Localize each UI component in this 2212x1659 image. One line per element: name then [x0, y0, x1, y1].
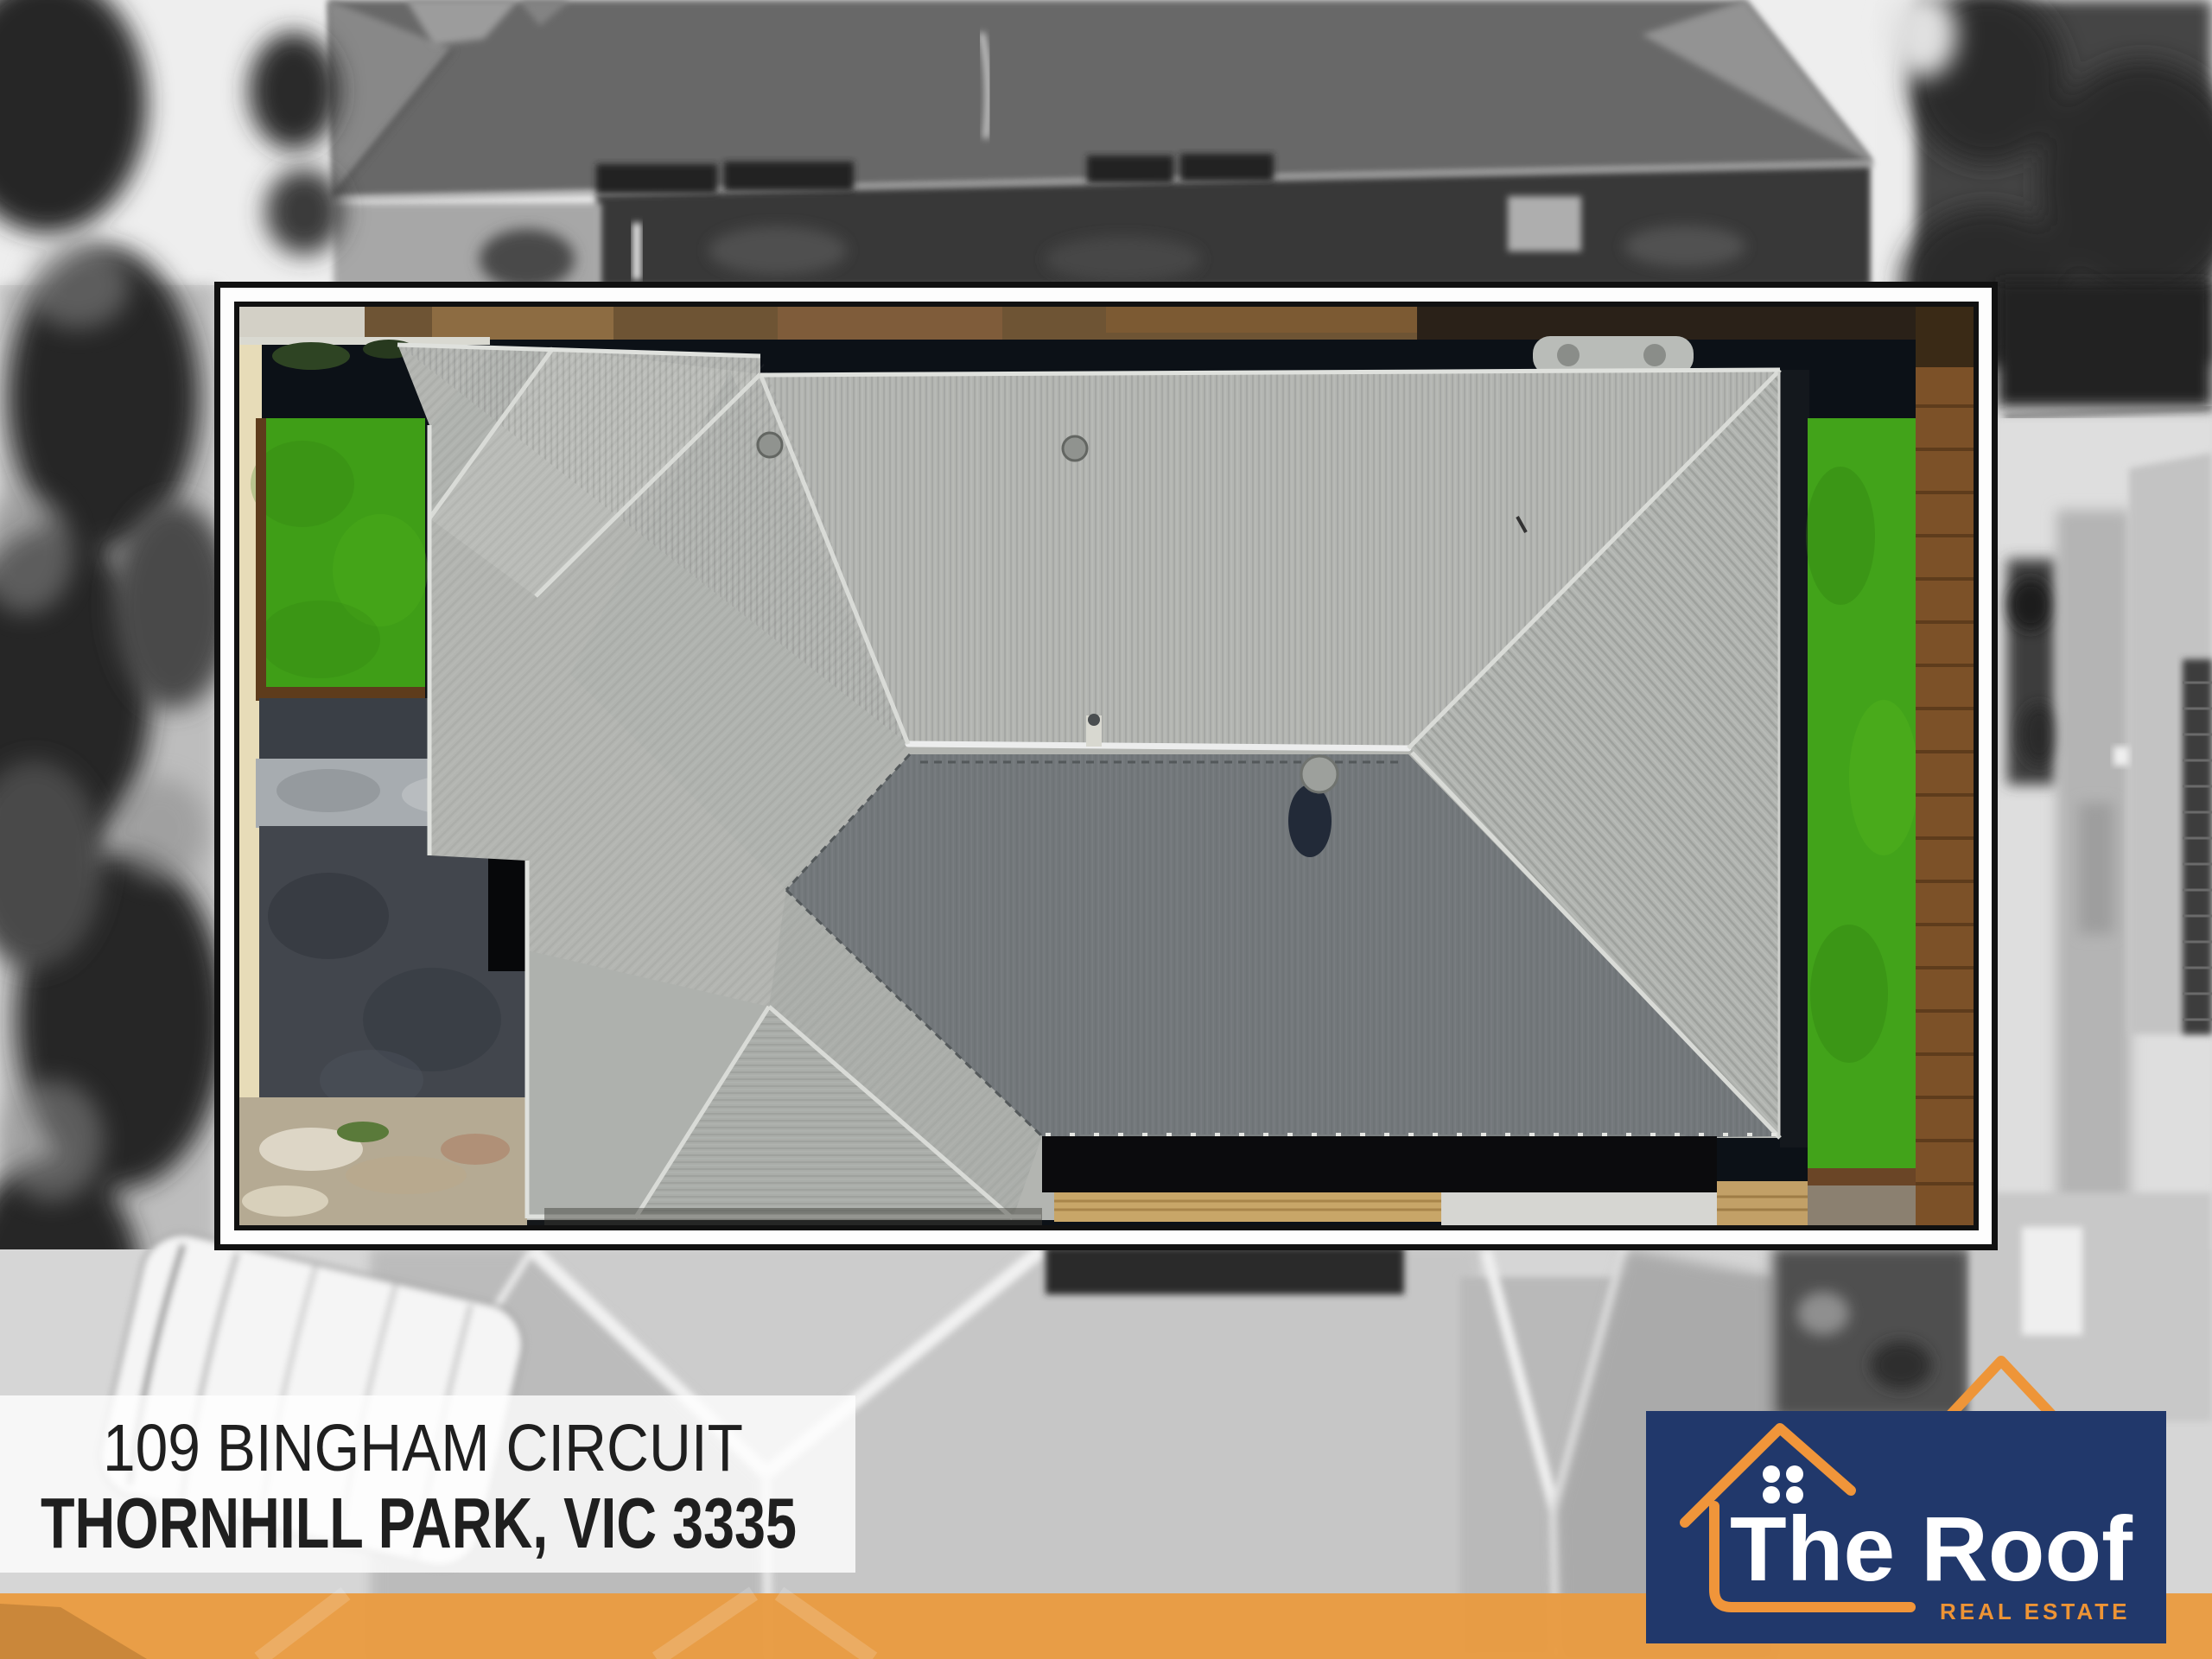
svg-text:109 BINGHAM CIRCUIT: 109 BINGHAM CIRCUIT	[103, 1411, 743, 1485]
svg-text:REAL ESTATE: REAL ESTATE	[1940, 1599, 2134, 1624]
svg-text:THORNHILL PARK, VIC 3335: THORNHILL PARK, VIC 3335	[41, 1483, 797, 1563]
svg-text:The Roof: The Roof	[1730, 1498, 2133, 1600]
